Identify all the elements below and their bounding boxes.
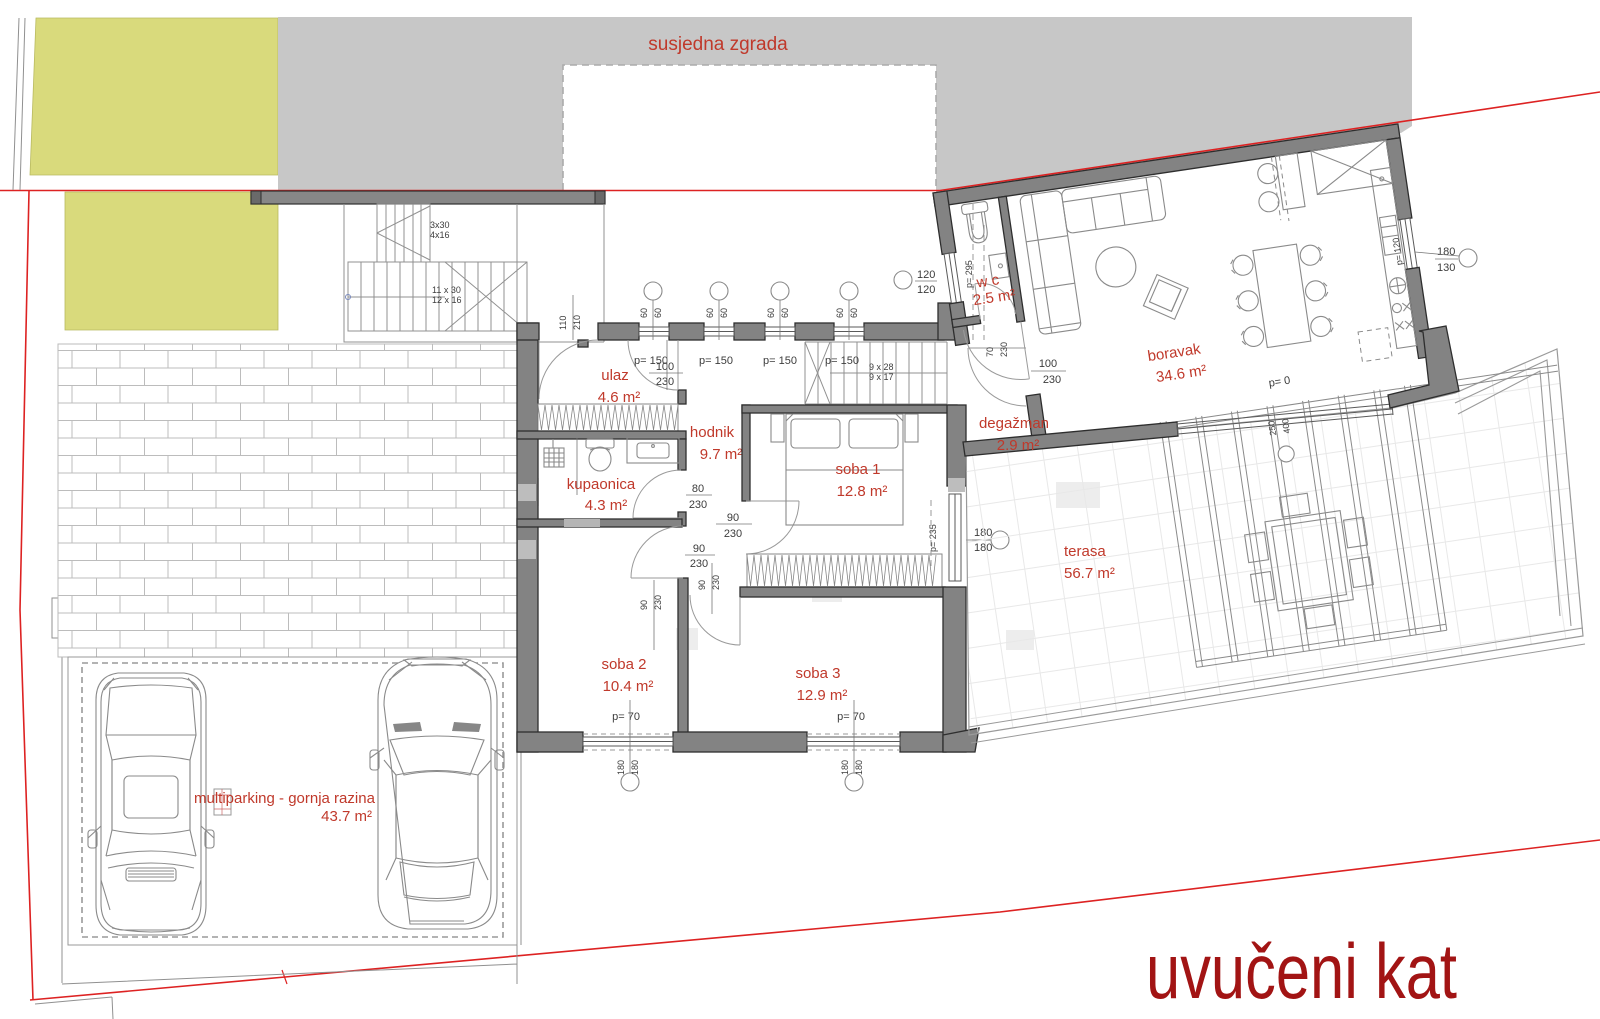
svg-text:soba 3: soba 3: [795, 665, 840, 682]
svg-text:p= 70: p= 70: [837, 711, 865, 723]
svg-text:70: 70: [985, 347, 995, 357]
svg-text:12.8 m²: 12.8 m²: [837, 483, 888, 500]
svg-text:4.6 m²: 4.6 m²: [598, 389, 641, 406]
svg-text:230: 230: [653, 595, 663, 610]
svg-text:hodnik: hodnik: [690, 424, 735, 441]
svg-text:120: 120: [917, 269, 935, 281]
svg-text:soba 2: soba 2: [601, 656, 646, 673]
svg-text:soba 1: soba 1: [835, 461, 880, 478]
svg-text:susjedna zgrada: susjedna zgrada: [648, 34, 788, 55]
svg-text:11 x 30: 11 x 30: [432, 285, 461, 295]
svg-text:60: 60: [849, 308, 859, 318]
svg-text:2.9 m²: 2.9 m²: [997, 437, 1040, 454]
svg-text:230: 230: [689, 499, 707, 511]
svg-text:120: 120: [917, 284, 935, 296]
svg-text:ulaz: ulaz: [601, 367, 629, 384]
svg-text:p= 150: p= 150: [763, 355, 797, 367]
svg-text:60: 60: [780, 308, 790, 318]
svg-text:90: 90: [697, 580, 707, 590]
svg-text:3x30: 3x30: [430, 220, 450, 230]
svg-text:180: 180: [854, 760, 864, 775]
svg-text:12 x 16: 12 x 16: [432, 295, 462, 305]
svg-text:180: 180: [840, 760, 850, 775]
svg-text:230: 230: [711, 575, 721, 590]
svg-text:130: 130: [1437, 262, 1455, 274]
svg-text:4x16: 4x16: [430, 230, 450, 240]
svg-text:p= 295: p= 295: [964, 260, 974, 288]
svg-text:100: 100: [1039, 358, 1057, 370]
svg-text:100: 100: [656, 361, 674, 373]
svg-text:60: 60: [766, 308, 776, 318]
svg-text:9 x 17: 9 x 17: [869, 372, 894, 382]
svg-text:180: 180: [1437, 246, 1455, 258]
svg-text:uvučeni kat: uvučeni kat: [1146, 927, 1457, 1015]
svg-text:110: 110: [558, 316, 568, 330]
svg-text:43.7 m²: 43.7 m²: [321, 808, 372, 825]
svg-text:p= 150: p= 150: [699, 355, 733, 367]
svg-text:90: 90: [693, 543, 705, 555]
svg-text:60: 60: [705, 308, 715, 318]
svg-text:p= 235: p= 235: [928, 524, 938, 552]
svg-text:230: 230: [690, 558, 708, 570]
svg-text:multiparking - gornja razina: multiparking - gornja razina: [194, 790, 376, 807]
svg-text:10.4 m²: 10.4 m²: [603, 678, 654, 695]
svg-text:90: 90: [639, 600, 649, 610]
svg-text:90: 90: [727, 512, 739, 524]
svg-text:60: 60: [639, 308, 649, 318]
svg-text:60: 60: [719, 308, 729, 318]
svg-text:degažman: degažman: [979, 415, 1049, 432]
svg-text:60: 60: [653, 308, 663, 318]
svg-text:p= 70: p= 70: [612, 711, 640, 723]
svg-text:180: 180: [616, 760, 626, 775]
svg-text:kupaonica: kupaonica: [567, 476, 636, 493]
svg-text:230: 230: [999, 342, 1009, 357]
svg-text:4.3 m²: 4.3 m²: [585, 497, 628, 514]
svg-text:p= 150: p= 150: [825, 355, 859, 367]
svg-text:80: 80: [692, 483, 704, 495]
svg-text:210: 210: [572, 315, 582, 330]
svg-text:60: 60: [835, 308, 845, 318]
svg-text:9 x 28: 9 x 28: [869, 362, 894, 372]
svg-text:12.9 m²: 12.9 m²: [797, 687, 848, 704]
svg-text:56.7 m²: 56.7 m²: [1064, 565, 1115, 582]
svg-text:180: 180: [630, 760, 640, 775]
svg-text:230: 230: [656, 376, 674, 388]
svg-text:terasa: terasa: [1064, 543, 1106, 560]
svg-text:9.7 m²: 9.7 m²: [700, 446, 743, 463]
svg-text:230: 230: [724, 528, 742, 540]
svg-text:230: 230: [1043, 374, 1061, 386]
